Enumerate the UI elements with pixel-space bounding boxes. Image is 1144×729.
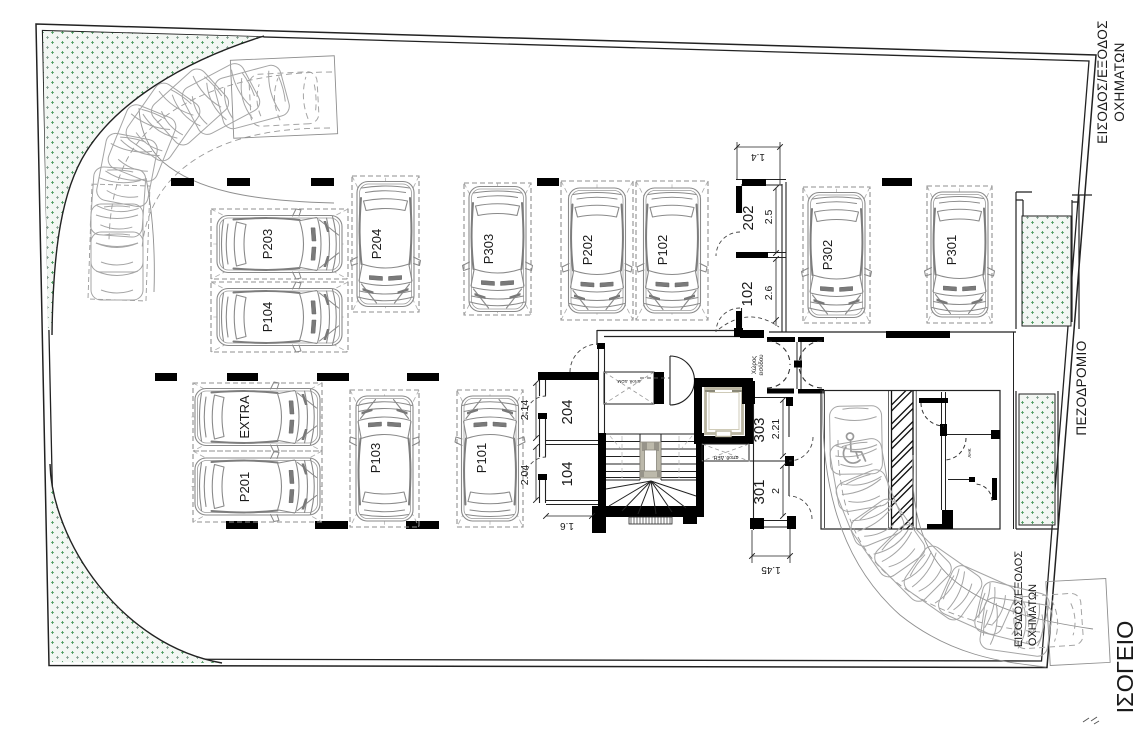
svg-text:P101: P101 [474, 443, 489, 473]
svg-text:202: 202 [740, 205, 757, 230]
svg-text:P301: P301 [944, 235, 959, 265]
svg-text:ΕΙΣΟΔΟΣ/ΕΞΟΔΟΣ: ΕΙΣΟΔΟΣ/ΕΞΟΔΟΣ [1095, 20, 1110, 144]
svg-text:P202: P202 [580, 235, 595, 265]
svg-text:αποθ. ΔΕΗ: αποθ. ΔΕΗ [713, 454, 738, 460]
svg-text:P102: P102 [655, 235, 670, 265]
svg-text:ΕΙΣΟΔΟΣ/ΕΞΟΔΟΣ: ΕΙΣΟΔΟΣ/ΕΞΟΔΟΣ [1013, 551, 1025, 648]
svg-text:P302: P302 [820, 240, 835, 270]
svg-text:104: 104 [559, 461, 576, 486]
svg-text:EXTRA: EXTRA [237, 395, 252, 439]
svg-text:P104: P104 [260, 302, 275, 332]
svg-text:2.5: 2.5 [763, 210, 775, 225]
svg-text:1.45: 1.45 [761, 564, 781, 575]
svg-text:P204: P204 [369, 229, 384, 259]
svg-text:Χώρος: Χώρος [752, 356, 758, 374]
svg-text:P303: P303 [481, 234, 496, 264]
svg-text:2: 2 [770, 488, 782, 494]
svg-text:P203: P203 [260, 229, 275, 259]
svg-text:2.21: 2.21 [770, 419, 782, 440]
svg-text:P103: P103 [368, 443, 383, 473]
svg-text:2.04: 2.04 [519, 465, 531, 486]
svg-text:1.6: 1.6 [560, 520, 574, 531]
svg-text:1.4: 1.4 [751, 151, 765, 162]
svg-text:303: 303 [751, 417, 768, 442]
svg-text:αποθ. ΔΩΜ: αποθ. ΔΩΜ [617, 379, 640, 384]
svg-text:εισόδου: εισόδου [758, 354, 765, 375]
svg-text:ΟΧΗΜΑΤΩΝ: ΟΧΗΜΑΤΩΝ [1112, 42, 1127, 122]
svg-text:301: 301 [751, 479, 768, 504]
svg-text:P201: P201 [237, 472, 252, 502]
svg-text:ΛΗΚ: ΛΗΚ [967, 448, 972, 457]
svg-text:ΟΧΗΜΑΤΩΝ: ΟΧΗΜΑΤΩΝ [1027, 584, 1039, 646]
svg-text:2.14: 2.14 [519, 400, 531, 421]
svg-text:ΙΣΟΓΕΙΟ: ΙΣΟΓΕΙΟ [1112, 621, 1138, 714]
svg-text:102: 102 [739, 281, 756, 306]
svg-text:ΠΕΖΟΔΡΟΜΙΟ: ΠΕΖΟΔΡΟΜΙΟ [1074, 340, 1089, 435]
svg-text:2.6: 2.6 [763, 286, 775, 301]
svg-text:204: 204 [559, 399, 576, 424]
